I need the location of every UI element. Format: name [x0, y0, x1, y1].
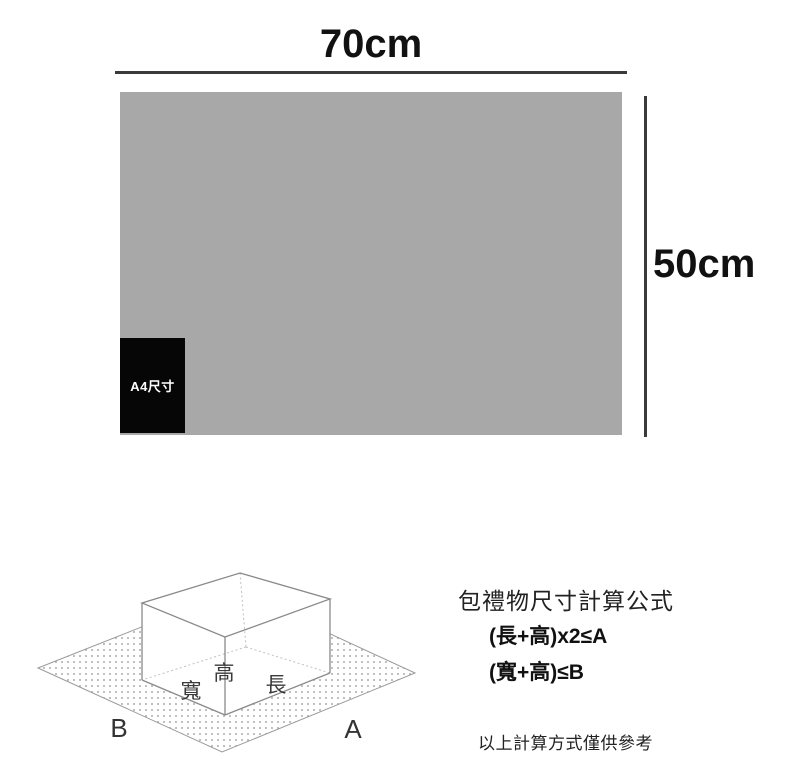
a4-size-label: A4尺寸: [130, 376, 175, 395]
formula-title: 包禮物尺寸計算公式: [458, 582, 674, 616]
width-dimension-line: [115, 71, 627, 74]
box-height-label: 高: [214, 662, 235, 685]
height-dimension-line: [644, 96, 647, 437]
sheet-side-b-label: B: [110, 713, 127, 743]
box-width-label: 寬: [181, 680, 202, 703]
paper-width-label: 70cm: [271, 22, 471, 67]
gift-box-wrapping-diagram: 寬 高 長 B A: [0, 550, 460, 759]
sheet-side-a-label: A: [344, 714, 362, 744]
product-size-diagram: 70cm A4尺寸 50cm 寬: [0, 0, 809, 759]
formula-disclaimer: 以上計算方式僅供參考: [478, 729, 653, 754]
box-length-label: 長: [266, 674, 287, 697]
a4-size-reference-rectangle: A4尺寸: [120, 338, 185, 433]
paper-height-label: 50cm: [653, 242, 755, 287]
formula-length-height: (長+高)x2≤A: [489, 620, 607, 650]
paper-sheet-rectangle: [120, 92, 622, 435]
formula-width-height: (寬+高)≤B: [489, 656, 584, 686]
